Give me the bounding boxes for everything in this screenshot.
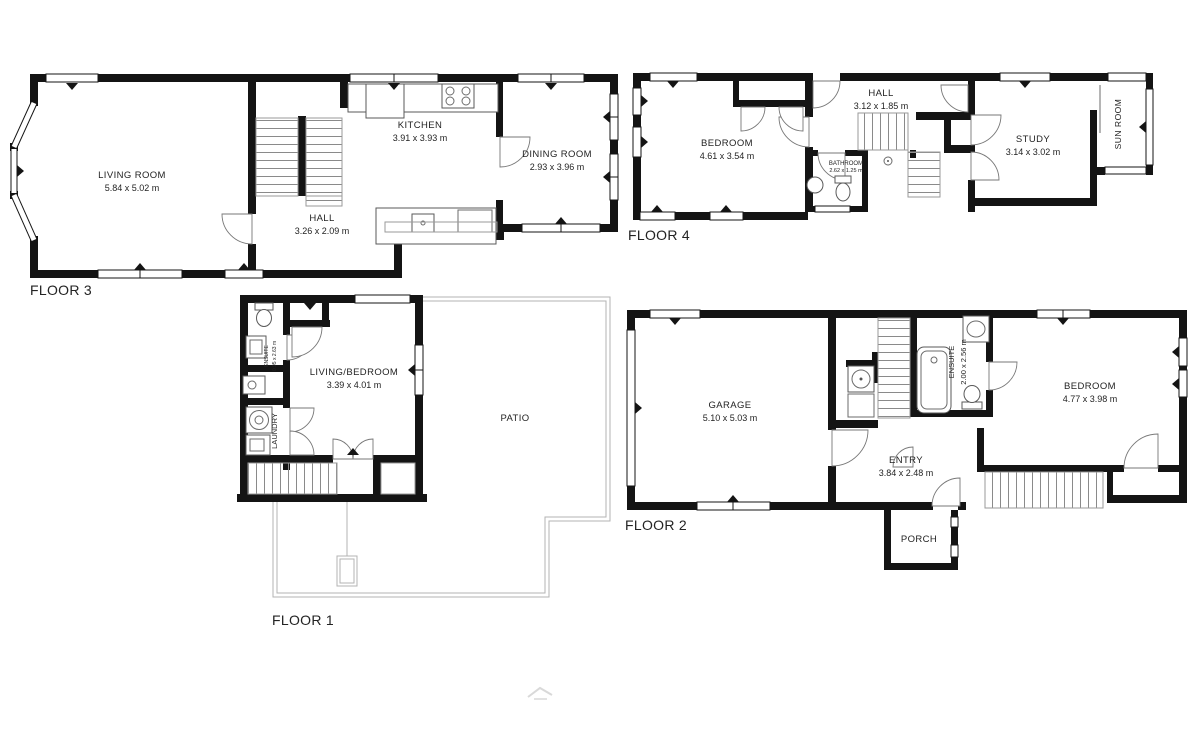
floor3-kitchen-fixtures (348, 84, 498, 244)
floor3-plan: LIVING ROOM 5.84 x 5.02 m KITCHEN 3.91 x… (10, 74, 618, 298)
toilet-tank-icon (962, 402, 982, 409)
sink-icon (807, 177, 823, 193)
door-closet-top (941, 85, 968, 112)
study-label: STUDY (1016, 134, 1050, 145)
floor1-plan: LIVING/BEDROOM 3.39 x 4.01 m ENSUITE 0.9… (237, 295, 610, 628)
kitchen-island-icon (376, 208, 496, 244)
porch-label: PORCH (901, 534, 937, 545)
hall4-dims: 3.12 x 1.85 m (854, 101, 909, 111)
laundry-label: LAUNDRY (270, 413, 279, 449)
door-bedroom2 (1124, 434, 1158, 468)
floorplan-canvas: LIVING ROOM 5.84 x 5.02 m KITCHEN 3.91 x… (0, 0, 1200, 750)
toilet-icon (836, 183, 850, 201)
door-ensuite2 (989, 362, 1017, 390)
kitchen-dims: 3.91 x 3.93 m (393, 133, 448, 143)
door-laundry-b (290, 431, 314, 455)
french-door-right (353, 439, 373, 459)
garage-dims: 5.10 x 5.03 m (703, 413, 758, 423)
watermark-logo (528, 688, 552, 699)
toilet-icon (964, 386, 980, 403)
sun-room-label: SUN ROOM (1113, 99, 1123, 150)
entry-dims: 3.84 x 2.48 m (879, 468, 934, 478)
bedroom4-dims: 4.61 x 3.54 m (700, 151, 755, 161)
toilet-tank-icon (255, 303, 273, 310)
living-bedroom-label: LIVING/BEDROOM (310, 367, 398, 378)
hall4-label: HALL (868, 88, 893, 99)
bedroom2-dims: 4.77 x 3.98 m (1063, 394, 1118, 404)
entry-label: ENTRY (889, 455, 923, 466)
floorplan-svg: LIVING ROOM 5.84 x 5.02 m KITCHEN 3.91 x… (0, 0, 1200, 750)
patio-label: PATIO (500, 413, 529, 424)
ensuite1-dims: 0.95 x 2.63 m (272, 341, 278, 371)
ensuite2-label: ENSUITE (947, 346, 956, 379)
floor1-patio-outline (273, 297, 610, 597)
door-garage-entry (832, 430, 868, 466)
hall3-label: HALL (309, 213, 334, 224)
door-closet1 (292, 327, 322, 357)
door-hall-top (813, 81, 840, 108)
sink-icon (246, 336, 266, 358)
floor4-title: FLOOR 4 (628, 227, 690, 243)
utility-fixture-icon (243, 376, 265, 394)
floor2-plan: GARAGE 5.10 x 5.03 m ENSUITE 2.00 x 2.56… (625, 310, 1187, 570)
floor2-title: FLOOR 2 (625, 517, 687, 533)
floor4-staircase-icon (858, 113, 940, 197)
door-laundry-a (290, 408, 314, 432)
floor3-title: FLOOR 3 (30, 282, 92, 298)
ensuite1-label: ENSUITE (264, 345, 270, 367)
floor1-staircase-icon (248, 463, 415, 494)
stove-icon (442, 84, 474, 108)
door-study-a (971, 115, 1001, 145)
bathroom-dims: 2.62 x 1.25 m (829, 168, 863, 174)
living-room-dims: 5.84 x 5.02 m (105, 183, 160, 193)
toilet-tank-icon (835, 176, 851, 183)
french-door-left (333, 439, 353, 459)
dining-room-dims: 2.93 x 3.96 m (530, 162, 585, 172)
floor1-title: FLOOR 1 (272, 612, 334, 628)
bedroom2-label: BEDROOM (1064, 381, 1116, 392)
bathroom-label: BATHROOM (829, 161, 863, 167)
hall3-dims: 3.26 x 2.09 m (295, 226, 350, 236)
sunroom-window (1146, 89, 1153, 165)
floor1-doors (287, 327, 373, 459)
study-dims: 3.14 x 3.02 m (1006, 147, 1061, 157)
garage-door (627, 330, 635, 486)
kitchen-label: KITCHEN (398, 120, 443, 131)
door-study-b (971, 152, 999, 180)
living-room-label: LIVING ROOM (98, 170, 166, 181)
front-door (932, 478, 960, 506)
living-bedroom-dims: 3.39 x 4.01 m (327, 380, 382, 390)
bedroom4-label: BEDROOM (701, 138, 753, 149)
dining-room-label: DINING ROOM (522, 149, 592, 160)
toilet-icon (257, 310, 272, 327)
floor4-plan: BEDROOM 4.61 x 3.54 m HALL 3.12 x 1.85 m… (628, 73, 1153, 243)
garage-label: GARAGE (708, 400, 751, 411)
sink-icon (412, 214, 434, 232)
ensuite2-dims: 2.00 x 2.56 m (959, 339, 968, 384)
closet-door-left (741, 107, 765, 131)
door-living-hall (222, 214, 252, 244)
